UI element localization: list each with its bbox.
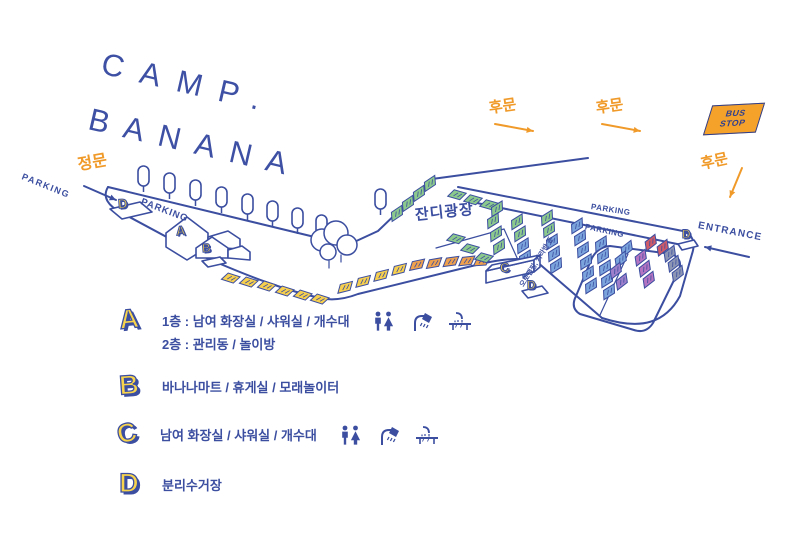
legend-row-d: D 분리수거장 — [112, 470, 222, 498]
campsite-tile — [461, 243, 480, 255]
legend-a-line2: 2층 : 관리동 / 놀이방 — [162, 334, 474, 357]
tree-crown — [292, 208, 303, 228]
back-gate-label-1: 후문 — [488, 97, 517, 116]
legend-c-text: 남여 화장실 / 샤워실 / 개수대 — [160, 420, 441, 448]
legend-b-text: 바나나마트 / 휴게실 / 모래놀이터 — [162, 372, 339, 400]
bush-icon — [320, 244, 336, 260]
pad-d-east — [678, 240, 698, 250]
campsite-tile — [293, 289, 312, 302]
legend-a-line1: 1층 : 남여 화장실 / 샤워실 / 개수대 — [162, 311, 350, 334]
tree-icon — [164, 173, 175, 199]
tree-crown — [242, 194, 253, 214]
campsite-tile — [390, 263, 408, 275]
tile-body — [390, 263, 408, 275]
map-marker-c: C — [499, 260, 510, 274]
tile-body — [458, 256, 476, 266]
legend-b-line1: 바나나마트 / 휴게실 / 모래놀이터 — [162, 377, 339, 400]
map-line — [436, 229, 518, 260]
tree-icon — [216, 187, 227, 213]
campsite-tile — [448, 189, 467, 201]
facility-icons-c — [339, 425, 441, 447]
campsite-tile — [447, 233, 466, 245]
tree-icon — [190, 180, 201, 206]
tree-icon — [292, 208, 303, 234]
legend-marker-c: C — [107, 416, 147, 450]
tile-body — [293, 289, 312, 302]
road — [432, 158, 588, 179]
facility-icons-a — [372, 311, 474, 333]
map-marker-d: D — [118, 197, 128, 211]
legend-c-line1: 남여 화장실 / 샤워실 / 개수대 — [160, 425, 317, 448]
tree-icon — [375, 189, 386, 215]
shower-icon — [378, 425, 404, 447]
bus-stop-sign: BUS STOP — [703, 103, 765, 136]
tree-icon — [267, 201, 278, 227]
campsite-tile — [372, 269, 390, 281]
bus-stop-line-2: STOP — [718, 118, 746, 129]
sink-icon — [413, 425, 441, 447]
restroom-icon — [372, 311, 402, 333]
tile-body — [408, 259, 426, 270]
legend-marker-b: B — [111, 371, 147, 400]
tile-body — [447, 233, 466, 245]
tile-body — [425, 258, 443, 269]
map-marker-d: D — [527, 279, 536, 291]
tile-body — [354, 275, 372, 287]
legend-d-text: 분리수거장 — [162, 470, 222, 498]
campsite-tile — [425, 258, 443, 269]
campsite-tile — [336, 281, 354, 293]
tile-body — [461, 243, 480, 255]
campsite-tile — [310, 293, 329, 306]
tile-body — [310, 293, 329, 306]
map-marker-b: B — [202, 242, 211, 255]
tree-crown — [138, 166, 149, 186]
campsite-tile — [442, 256, 460, 266]
tree-crown — [375, 189, 386, 209]
legend-row-c: C 남여 화장실 / 샤워실 / 개수대 — [110, 420, 441, 448]
tile-body — [257, 280, 276, 293]
campsite-tile — [458, 256, 476, 266]
campsite-tile — [408, 259, 426, 270]
campsite-tile — [354, 275, 372, 287]
tile-body — [336, 281, 354, 293]
sink-icon — [446, 311, 474, 333]
legend-marker-a: A — [111, 304, 148, 334]
camp-map-page: CAMP. BANANA BUS STOP PARKING정문PARKING후문… — [0, 0, 800, 550]
tree-crown — [216, 187, 227, 207]
legend-marker-d: D — [112, 470, 146, 497]
legend-a-text: 1층 : 남여 화장실 / 샤워실 / 개수대 — [162, 306, 474, 357]
map-marker-a: A — [176, 224, 186, 238]
bush-icon — [337, 235, 357, 255]
map-marker-d: D — [682, 228, 691, 240]
tile-body — [221, 272, 240, 285]
restroom-icon — [339, 425, 369, 447]
legend-d-line1: 분리수거장 — [162, 475, 222, 498]
tile-body — [442, 256, 460, 266]
entrance-arrow — [705, 247, 749, 257]
tree-crown — [190, 180, 201, 200]
campsite-tile — [257, 280, 276, 293]
tree-crown — [267, 201, 278, 221]
campsite-tile — [221, 272, 240, 285]
tile-body — [372, 269, 390, 281]
tile-body — [448, 189, 467, 201]
back-gate-label-2: 후문 — [595, 97, 624, 116]
shower-icon — [411, 311, 437, 333]
tree-icon — [242, 194, 253, 220]
tree-crown — [164, 173, 175, 193]
tree-icon — [138, 166, 149, 192]
legend-row-b: B 바나나마트 / 휴게실 / 모래놀이터 — [112, 372, 339, 400]
legend-row-a: A 1층 : 남여 화장실 / 샤워실 / 개수대 — [112, 306, 474, 357]
